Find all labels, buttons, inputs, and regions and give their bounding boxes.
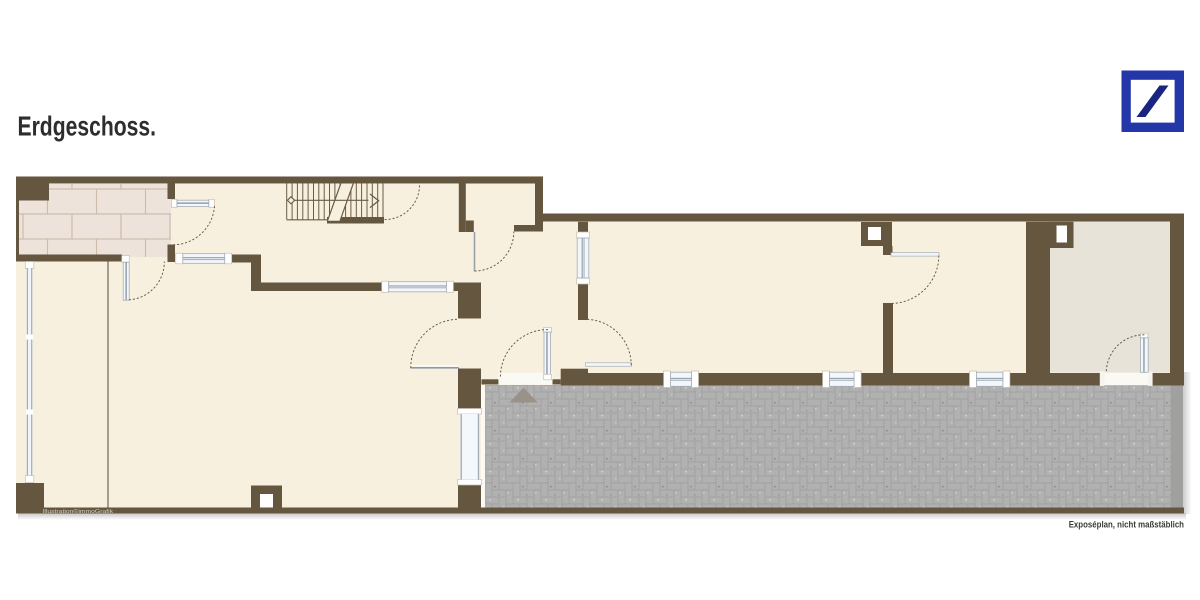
svg-text:Exposéplan, nicht maßstäblich: Exposéplan, nicht maßstäblich — [1069, 520, 1184, 530]
svg-text:Illustration©immoGrafik: Illustration©immoGrafik — [43, 508, 114, 515]
svg-text:Erdgeschoss.: Erdgeschoss. — [18, 111, 157, 142]
